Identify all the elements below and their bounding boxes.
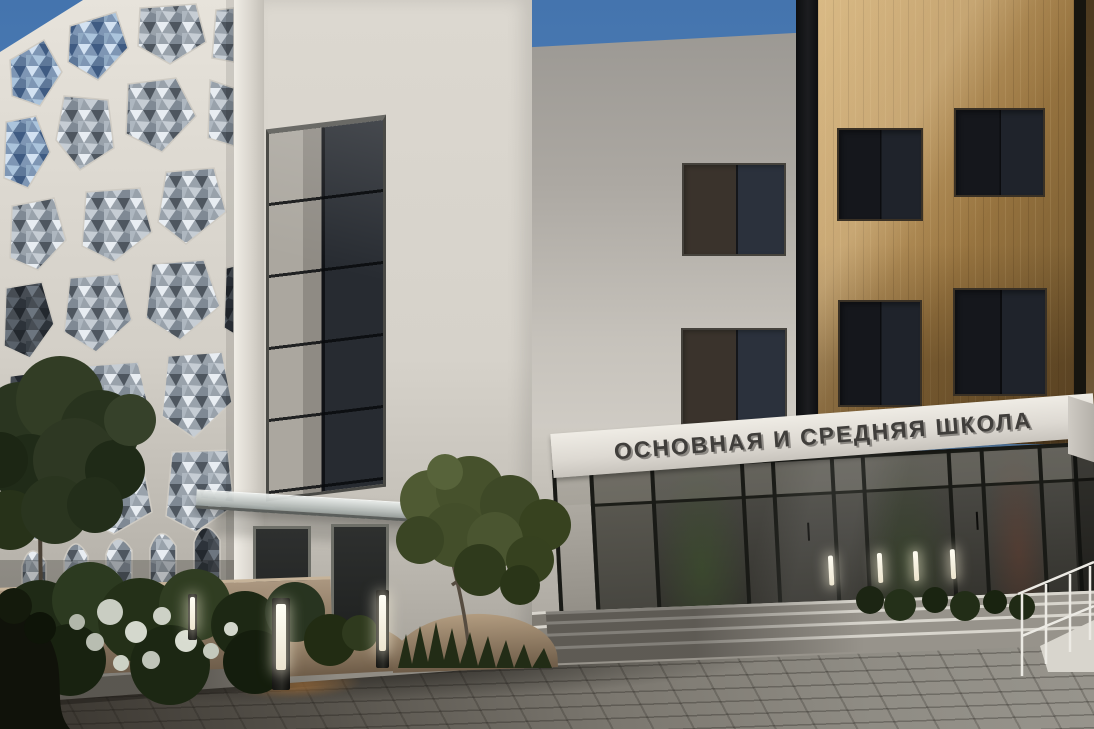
bollard-light bbox=[188, 594, 197, 640]
scene-school-building-render: ОСНОВНАЯ И СРЕДНЯЯ ШКОЛА bbox=[0, 0, 1094, 729]
tree-mid bbox=[396, 454, 571, 665]
grasses-right-of-tree bbox=[398, 622, 552, 668]
bollard-light bbox=[376, 590, 389, 668]
bollard-led bbox=[190, 597, 195, 630]
ramp-railing bbox=[1000, 550, 1094, 680]
bollard-led bbox=[379, 595, 386, 651]
bollard-led bbox=[276, 604, 286, 670]
bollard-light bbox=[272, 598, 290, 690]
landscaping bbox=[0, 0, 1094, 729]
